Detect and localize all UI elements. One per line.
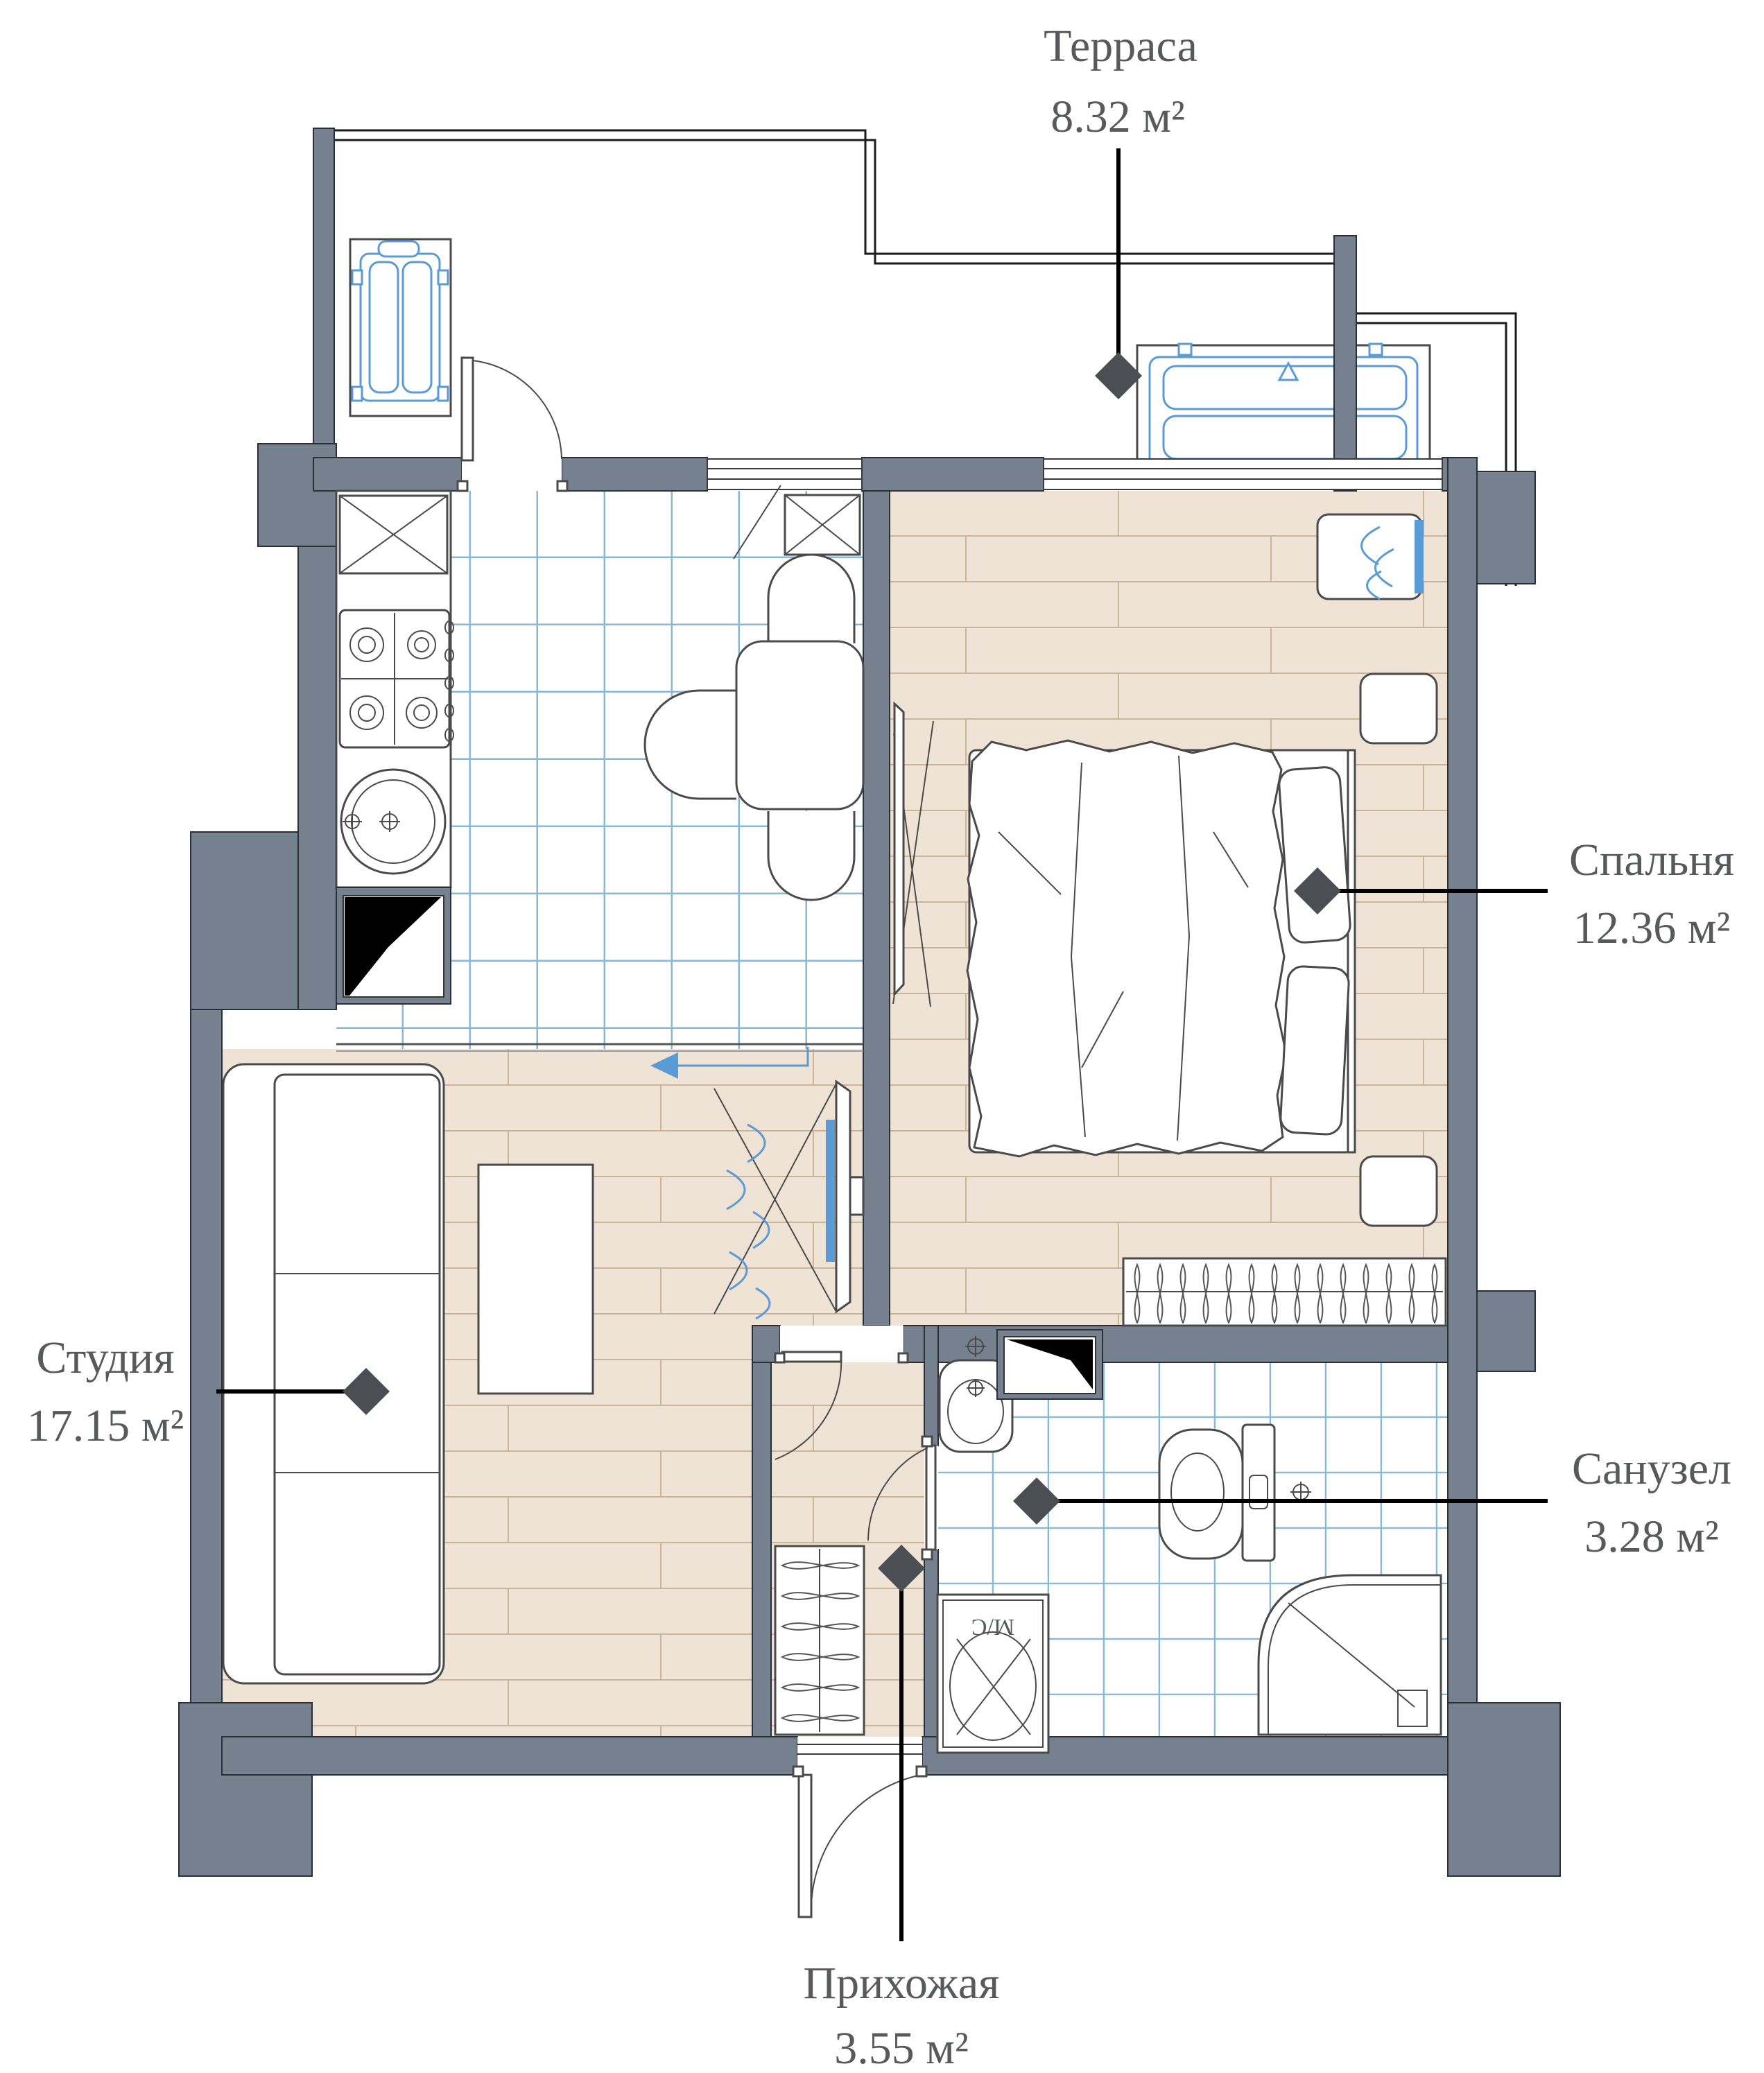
stove-icon: [340, 610, 453, 747]
kitchen-vent-shaft-icon: [336, 887, 451, 1004]
terrace-door: [458, 358, 567, 491]
bathroom-area: 3.28 м²: [1584, 1511, 1719, 1562]
bedroom-name: Спальня: [1569, 835, 1734, 885]
floor-plan: М/С Терраса 8.32 м² Спальня 12.36 м² Сту…: [0, 0, 1764, 2070]
kitchen-cabinet-icon: [340, 496, 447, 573]
hallway-name: Прихожая: [803, 1958, 999, 2009]
hallway-area: 3.55 м²: [834, 2023, 969, 2070]
bed-icon: [967, 740, 1355, 1156]
washing-machine-icon: М/С: [937, 1595, 1048, 1753]
terrace-area: 8.32 м²: [1050, 92, 1185, 142]
sun-lounger-left-icon: [350, 239, 451, 416]
nightstand-top-icon: [1360, 674, 1437, 743]
studio-area: 17.15 м²: [27, 1400, 184, 1451]
bedroom-window: [1044, 459, 1442, 489]
terrace-callout: Терраса 8.32 м²: [1044, 21, 1197, 399]
sofa-icon: [223, 1064, 444, 1683]
bedroom-radiator-icon: [1317, 514, 1424, 599]
bathroom-name: Санузел: [1572, 1443, 1731, 1494]
nightstand-bottom-icon: [1360, 1156, 1437, 1226]
washer-label: М/С: [971, 1614, 1014, 1640]
entrance-door: [793, 1737, 926, 1917]
studio-name: Студия: [36, 1333, 174, 1383]
shower-icon: [1259, 1575, 1441, 1735]
bedroom-area: 12.36 м²: [1573, 903, 1731, 953]
kitchen-window: [707, 459, 862, 489]
bedroom-wardrobe-icon: [1123, 1258, 1446, 1326]
kitchen-sink-icon: [341, 770, 445, 874]
bathroom-vent-shaft-icon: [997, 1330, 1102, 1399]
coffee-table-icon: [478, 1165, 593, 1394]
hallway-wardrobe-icon: [775, 1546, 864, 1735]
terrace-name: Терраса: [1044, 21, 1197, 71]
